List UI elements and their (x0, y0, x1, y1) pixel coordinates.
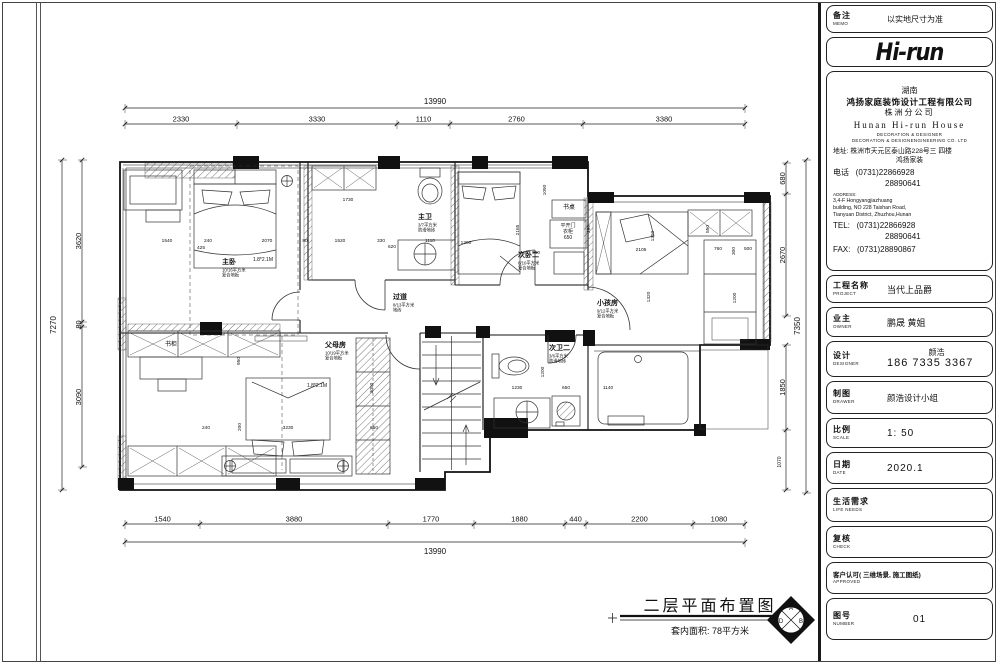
dim-text: 200 (237, 423, 243, 431)
master-bath-fixtures (312, 166, 455, 270)
dim-text: 1200 (732, 292, 738, 303)
owner-label: 业主 (833, 315, 887, 324)
titleblock-project: 工程名称 PROJECT 当代上品爵 (826, 275, 993, 303)
floor-plan: 1399023303330111027603380154038801770188… (0, 0, 818, 666)
room-label: 主卧 (222, 257, 236, 266)
address-value2: 鸿扬家装 (833, 157, 986, 166)
company-region: 湖南 (833, 86, 986, 96)
room-label: 次卫二 (549, 343, 570, 352)
phone-label: 电话 (833, 168, 849, 177)
dim-text: 1080 (711, 515, 728, 524)
dim-text: 240 (204, 238, 212, 244)
dim-text: 1320 (646, 291, 652, 302)
address-en-line2: building, NO 228 Taishan Road, (833, 205, 986, 212)
dim-text: 330 (377, 238, 385, 244)
date-label: 日期 (833, 461, 887, 470)
kids-room-furniture (596, 210, 756, 344)
tel-value1: (0731)22866928 (857, 221, 916, 230)
memo-sublabel: MEMO (833, 21, 887, 26)
dim-text: 2760 (508, 115, 525, 124)
project-label: 工程名称 (833, 282, 887, 291)
drawer-sublabel: DRAWER (833, 399, 887, 404)
dim-text: 1880 (511, 515, 528, 524)
plan-title-group: 二层平面布置图 套内面积: 78平方米 A B C D (608, 596, 815, 644)
dim-text: 290 (586, 225, 592, 233)
address-value: 株洲市天元区泰山路228号三 四楼 (850, 148, 952, 155)
room-label: 父母房 (324, 340, 346, 349)
dim-text: 7350 (793, 317, 802, 335)
laundry-balcony-area (598, 345, 768, 429)
titleblock-logo: Hi-run (826, 37, 993, 67)
dim-text: 1090 (542, 184, 548, 195)
titleblock-scale: 比例 SCALE 1: 50 (826, 418, 993, 448)
check-label: 复核 (833, 535, 887, 544)
dim-text: 3330 (309, 115, 326, 124)
company-en-line2: DECORATION & DESIGNENGINEERING CO. LTD (833, 138, 986, 144)
dim-text: 620 (388, 244, 396, 250)
scale-sublabel: SCALE (833, 435, 887, 440)
company-branch: 株洲分公司 (833, 108, 986, 118)
titleblock-life-needs: 生活需求 LIFE NEEDS (826, 488, 993, 522)
dim-text: 书柜 (165, 340, 177, 348)
dim-text: 2200 (631, 515, 648, 524)
dim-text: 13990 (424, 97, 447, 106)
dim-text: 2165 (515, 224, 521, 235)
dim-text: 1200 (461, 240, 472, 246)
dim-text: 950 (236, 357, 242, 365)
stairs (422, 336, 481, 470)
dim-text: 3880 (286, 515, 303, 524)
fax-label: FAX: (833, 245, 850, 254)
dim-text: 1.8*2.1M (253, 257, 273, 263)
dim-text: 80 (302, 238, 308, 244)
scale-value: 1: 50 (887, 428, 986, 439)
dim-text: 80 (74, 320, 83, 328)
room-floor-note: 复合地板 (325, 355, 343, 362)
dim-text: 1200 (540, 366, 546, 377)
approved-sublabel: APPROVED (833, 579, 986, 584)
tel-value2: 28890641 (833, 232, 986, 242)
drawing-sheet: 1399023303330111027603380154038801770188… (0, 0, 1000, 666)
room-label: 主卫 (418, 212, 432, 221)
dim-text: 1070 (777, 456, 783, 467)
dim-text: 650 (370, 425, 378, 431)
dim-text: 7270 (49, 316, 58, 334)
memo-label: 备注 (833, 12, 887, 21)
titleblock-number: 图号 NUMBER 01 (826, 598, 993, 640)
designer-name: 颜浩 (887, 348, 986, 358)
titleblock-designer: 设计 DESIGNER 颜浩 186 7335 3367 (826, 341, 993, 377)
dim-text: 3090 (74, 389, 83, 406)
project-sublabel: PROJECT (833, 291, 887, 296)
dim-text: 1230 (512, 385, 523, 391)
address-en-line3: Tianyuan District, Zhuzhou,Hunan (833, 212, 986, 219)
company-name-en: Hunan Hi-run House (833, 120, 986, 132)
room-floor-note: 防滑地砖 (549, 358, 567, 365)
master-bedroom-furniture (124, 166, 298, 335)
dim-text: 平开门 (560, 222, 575, 229)
dim-text: 3620 (74, 233, 83, 250)
plan-title: 二层平面布置图 (643, 597, 776, 615)
titleblock-approved: 客户认可( 三维场景, 施工图纸) APPROVED (826, 562, 993, 594)
dim-text: 2070 (262, 238, 273, 244)
room-floor-note: 复合地板 (597, 313, 615, 320)
owner-value: 鹏晟 黄姐 (887, 316, 986, 329)
approved-label: 客户认可( 三维场景, 施工图纸) (833, 572, 986, 579)
dim-text: 2670 (778, 247, 787, 264)
room-floor-note: 地砖 (393, 307, 402, 314)
titleblock-divider (818, 3, 821, 661)
date-sublabel: DATE (833, 470, 887, 475)
dim-text: 1.8*2.1M (307, 383, 327, 389)
titleblock-drawer: 制图 DRAWER 颜浩设计小组 (826, 381, 993, 414)
memo-value: 以实地尺寸为准 (887, 14, 986, 25)
dim-text: 13990 (424, 547, 447, 556)
dim-text: 1520 (335, 238, 346, 244)
drawer-label: 制图 (833, 390, 887, 399)
dim-text: 1110 (425, 238, 435, 244)
phone-value1: (0731)22866928 (856, 168, 915, 177)
titleblock-owner: 业主 OWNER 鹏晟 黄姐 (826, 307, 993, 337)
titleblock-check: 复核 CHECK (826, 526, 993, 558)
svg-text:A: A (789, 606, 793, 612)
plan-area-note: 套内面积: 78平方米 (671, 625, 749, 636)
number-value: 01 (887, 614, 986, 625)
date-value: 2020.1 (887, 463, 986, 474)
designer-phone: 186 7335 3367 (887, 357, 986, 370)
room-floor-note: 复合地板 (518, 265, 536, 272)
dim-text: 3230 (283, 425, 294, 431)
address-label: 地址: (833, 148, 848, 155)
designer-sublabel: DESIGNER (833, 361, 887, 366)
address-en-line1: 3,4-F Hongyangjiazhuang (833, 198, 986, 205)
dim-text: 440 (569, 515, 582, 524)
dim-text: 240 (202, 425, 210, 431)
dim-text: 书桌 (563, 203, 575, 211)
dim-text: 1850 (778, 379, 787, 396)
tel-label: TEL: (833, 221, 850, 230)
room-label: 过道 (393, 292, 407, 301)
titleblock-company: 湖南 鸿扬家庭装饰设计工程有限公司 株洲分公司 Hunan Hi-run Hou… (826, 71, 993, 271)
room-label: 次卧二 (518, 250, 539, 259)
titleblock: 备注 MEMO 以实地尺寸为准 Hi-run 湖南 鸿扬家庭装饰设计工程有限公司… (826, 5, 993, 644)
svg-text:C: C (789, 633, 794, 639)
number-label: 图号 (833, 612, 887, 621)
room-label: 小孩房 (596, 298, 618, 307)
fax-value: (0731)28890867 (857, 245, 916, 254)
dim-text: 1110 (416, 115, 432, 124)
dim-text: 1730 (343, 197, 354, 203)
scale-label: 比例 (833, 426, 887, 435)
dim-text: 680 (778, 172, 787, 185)
dim-text: 300 (731, 247, 737, 255)
dim-text: 500 (744, 246, 752, 252)
dim-text: 550 (705, 225, 711, 233)
phone-value2: 28890641 (833, 179, 986, 189)
company-logo: Hi-run (833, 38, 986, 66)
room-floor-note: 防滑地砖 (418, 227, 436, 234)
life-needs-label: 生活需求 (833, 498, 986, 507)
drawer-value: 颜浩设计小组 (887, 392, 986, 404)
wall-columns (118, 156, 770, 490)
dim-text: 650 (562, 385, 570, 391)
dim-text: 425 (197, 245, 205, 251)
dim-text: 650 (564, 235, 573, 241)
dim-text: 1540 (154, 515, 171, 524)
life-needs-sublabel: LIFE NEEDS (833, 507, 986, 512)
owner-sublabel: OWNER (833, 324, 887, 329)
dim-text: 1770 (423, 515, 440, 524)
svg-text:D: D (779, 619, 784, 625)
dim-text: 2105 (636, 247, 647, 253)
dim-text: 3380 (656, 115, 673, 124)
project-value: 当代上品爵 (887, 283, 986, 296)
dim-text: 3050 (369, 382, 375, 393)
titleblock-memo: 备注 MEMO 以实地尺寸为准 (826, 5, 993, 33)
titleblock-date: 日期 DATE 2020.1 (826, 452, 993, 484)
svg-text:B: B (799, 619, 803, 625)
dim-text: 1140 (603, 385, 614, 391)
designer-label: 设计 (833, 352, 887, 361)
company-name: 鸿扬家庭装饰设计工程有限公司 (833, 97, 986, 108)
number-sublabel: NUMBER (833, 621, 887, 626)
dim-text: 衣柜 (563, 228, 573, 235)
bath2-fixtures (492, 354, 580, 428)
room-floor-note: 复合地板 (222, 272, 240, 279)
dim-text: 1350 (650, 230, 656, 241)
dim-text: 760 (714, 246, 722, 252)
dim-text: 1540 (162, 238, 173, 244)
dim-text: 2330 (173, 115, 190, 124)
check-sublabel: CHECK (833, 544, 887, 549)
